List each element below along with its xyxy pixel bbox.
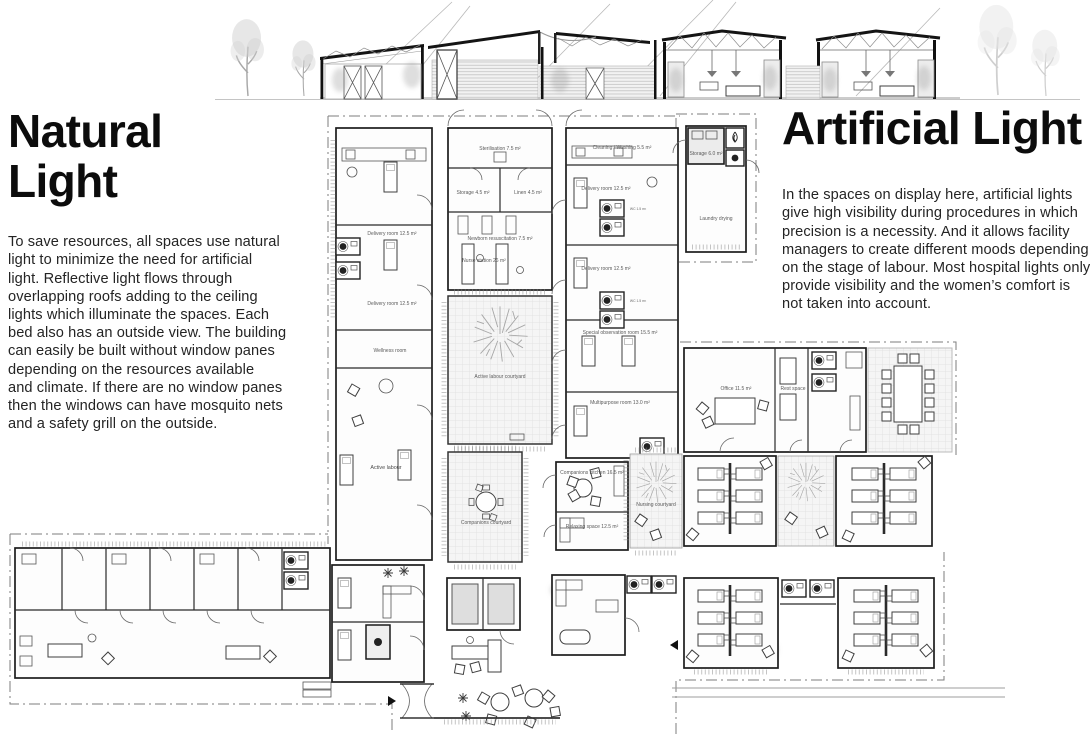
room-label-companions-kitchen: Companions kitchen 16.5 m² <box>560 470 624 476</box>
room-label-delivery-3: Delivery room 12.5 m² <box>367 231 417 237</box>
natural-light-paragraph: To save resources, all spaces use natura… <box>8 233 332 433</box>
paragraph-line: can easily be built without window panes <box>8 342 332 360</box>
paragraph-line: then the windows can have mosquito nets <box>8 397 332 415</box>
laundry-outbuilding <box>673 126 759 252</box>
wing-delivery-west <box>333 128 432 560</box>
room-label-wellness: Wellness room <box>374 348 407 354</box>
room-label-wc-1: WC 1.5 m² <box>630 207 647 211</box>
room-label-nursing-courtyard: Nursing courtyard <box>636 502 676 508</box>
paragraph-line: light. Reflective light flows through <box>8 270 332 288</box>
room-label-active-labour: Active labour <box>370 465 401 471</box>
wing-southwest <box>15 544 330 678</box>
ward-southeast-2 <box>838 578 934 672</box>
paragraph-line: managers to create different moods depen… <box>782 241 1090 259</box>
paragraph-line: bed also has an outside view. The buildi… <box>8 324 332 342</box>
natural-light-title: Natural Light <box>8 106 332 206</box>
ward-mid-east-2 <box>836 456 932 546</box>
paragraph-line: and climate. If there are no window pane… <box>8 379 332 397</box>
paragraph-line: and a safety grill on the outside. <box>8 415 332 433</box>
room-label-storage: Storage 4.5 m² <box>456 190 489 196</box>
paragraph-line: provide visibility and the women’s comfo… <box>782 277 1090 295</box>
room-label-nurse-station: Nurse station 26 m² <box>462 258 506 264</box>
artificial-light-title: Artificial Light <box>782 103 1090 153</box>
room-label-rest-space: Rest space <box>780 386 805 392</box>
paragraph-line: lights which illuminate the spaces. Each <box>8 306 332 324</box>
paragraph-line: precision is a necessity. And it allows … <box>782 223 1090 241</box>
paragraph-line: not taken into account. <box>782 295 1090 313</box>
paragraph-line: light to minimize the need for artificia… <box>8 251 332 269</box>
ward-mid-east-1 <box>684 456 776 546</box>
paragraph-line: In the spaces on display here, artificia… <box>782 186 1090 204</box>
room-label-companions-courtyard: Companions courtyard <box>461 520 512 526</box>
artificial-light-section: Artificial Light In the spaces on displa… <box>782 103 1090 314</box>
room-label-laundry-drying: Laundry drying <box>699 216 732 222</box>
natural-light-title-line1: Natural <box>8 105 162 157</box>
active-labour-courtyard <box>444 292 556 449</box>
natural-light-title-line2: Light <box>8 155 117 207</box>
room-label-sterilisation: Sterilisation 7.5 m² <box>479 146 521 152</box>
room-label-special-observation: Special observation room 15.5 m² <box>583 330 658 336</box>
room-label-linen: Linen 4.5 m² <box>514 190 542 196</box>
elevation-drawing <box>215 0 1080 100</box>
poster-page: { "colors": { "paper": "#ffffff", "ink":… <box>0 0 1090 738</box>
room-label-delivery-4: Delivery room 12.5 m² <box>367 301 417 307</box>
room-label-newborn-resuscitation: Newborn resuscitation 7.5 m² <box>467 236 532 242</box>
wing-office-northeast <box>684 348 952 452</box>
paragraph-line: on the stage of labour. Most hospital li… <box>782 259 1090 277</box>
room-label-office: Office 11.5 m² <box>721 386 752 392</box>
room-label-active-labour-courtyard: Active labour courtyard <box>474 374 525 380</box>
paragraph-line: depending on the resources available <box>8 361 332 379</box>
artificial-light-paragraph: In the spaces on display here, artificia… <box>782 186 1090 313</box>
paragraph-line: give high visibility during procedures i… <box>782 204 1090 222</box>
room-label-delivery-2: Delivery room 12.5 m² <box>581 266 631 272</box>
natural-light-section: Natural Light To save resources, all spa… <box>8 106 332 433</box>
ward-southeast-1 <box>684 578 778 672</box>
paragraph-line: overlapping roofs adding to the ceiling <box>8 288 332 306</box>
room-label-delivery-1: Delivery room 12.5 m² <box>581 186 631 192</box>
room-label-wc-2: WC 1.5 m² <box>630 299 647 303</box>
room-label-cleaning-washing: Cleaning / Washing 5.5 m² <box>593 145 652 151</box>
room-label-multipurpose: Multipurpose room 13.0 m² <box>590 400 650 406</box>
courtyard-mid-east <box>778 456 834 546</box>
room-label-relaxing-space: Relaxing space 12.5 m² <box>566 524 619 530</box>
ward-wc-pods <box>780 580 836 604</box>
paragraph-line: To save resources, all spaces use natura… <box>8 233 332 251</box>
room-label-laundry-storage: Storage 6.0 m² <box>689 151 722 157</box>
block-reception <box>332 565 678 728</box>
companions-courtyard <box>444 448 526 567</box>
